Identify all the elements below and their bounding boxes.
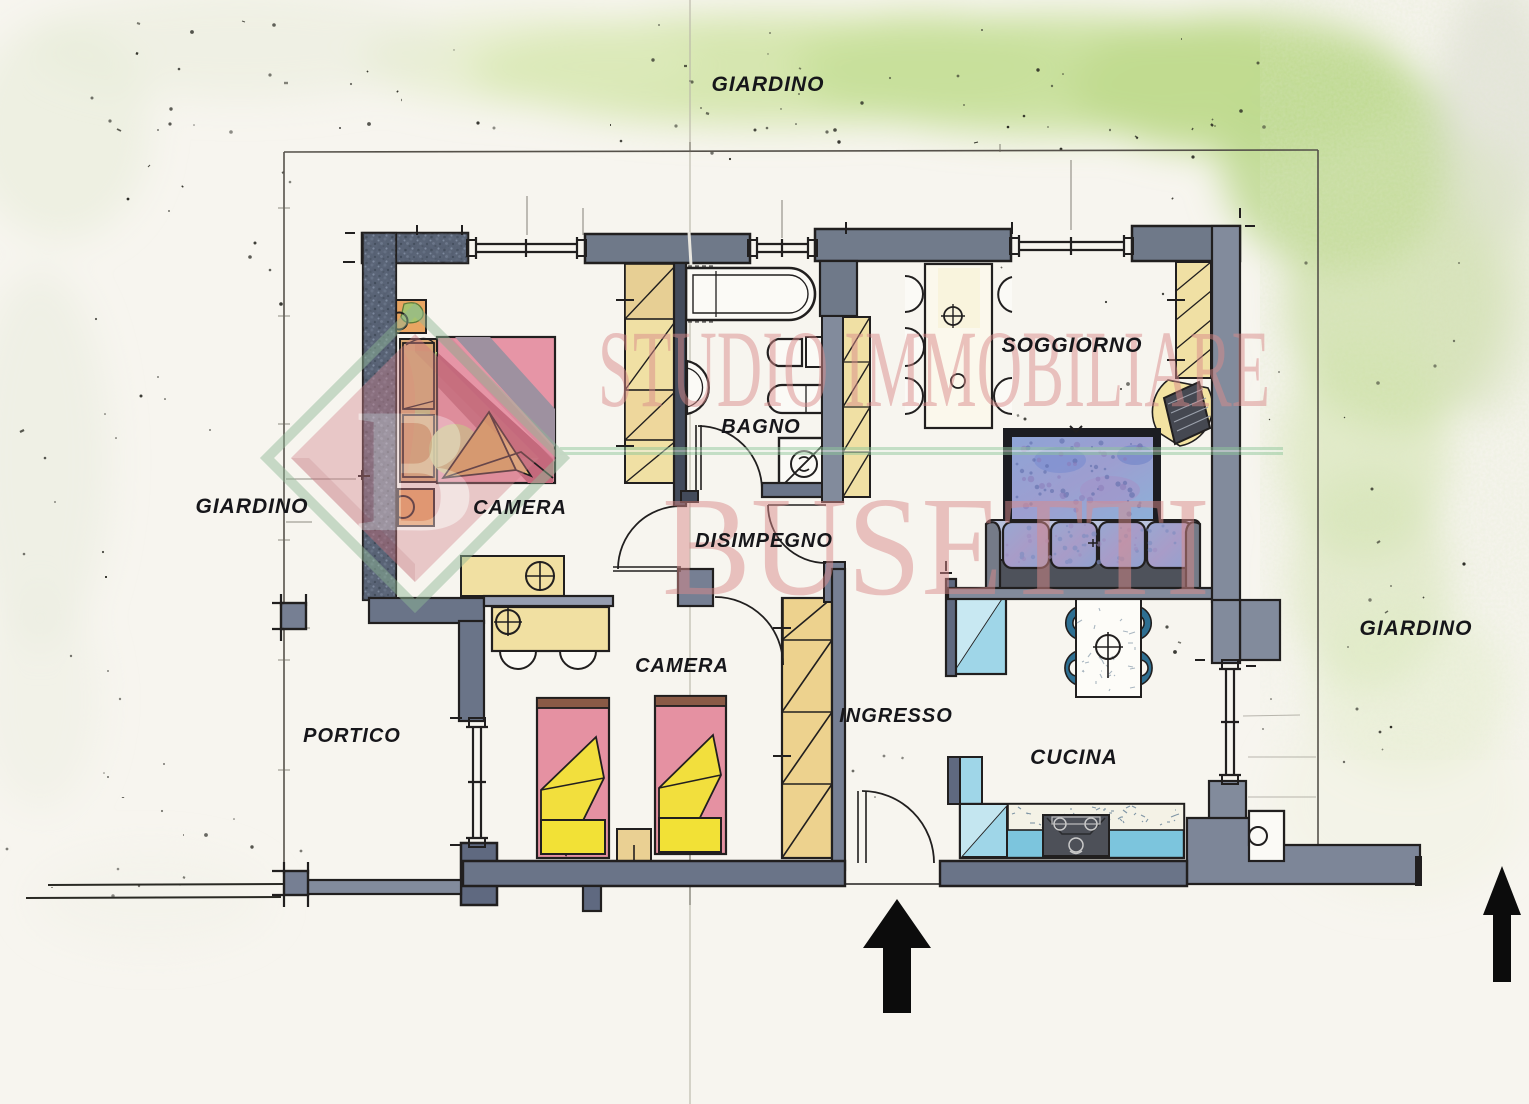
svg-text:GIARDINO: GIARDINO: [1360, 617, 1473, 640]
svg-text:INGRESSO: INGRESSO: [839, 705, 953, 727]
svg-text:STUDIO IMMOBILIARE: STUDIO IMMOBILIARE: [598, 308, 1270, 430]
svg-text:CUCINA: CUCINA: [1030, 746, 1118, 769]
svg-text:GIARDINO: GIARDINO: [196, 495, 309, 518]
svg-text:PORTICO: PORTICO: [303, 725, 401, 747]
svg-text:CAMERA: CAMERA: [635, 655, 729, 677]
svg-text:B: B: [356, 371, 475, 569]
svg-text:DISIMPEGNO: DISIMPEGNO: [695, 530, 833, 552]
svg-text:GIARDINO: GIARDINO: [712, 73, 825, 96]
svg-text:BAGNO: BAGNO: [721, 416, 800, 438]
svg-text:SOGGIORNO: SOGGIORNO: [1002, 334, 1143, 357]
svg-text:CAMERA: CAMERA: [473, 497, 567, 519]
